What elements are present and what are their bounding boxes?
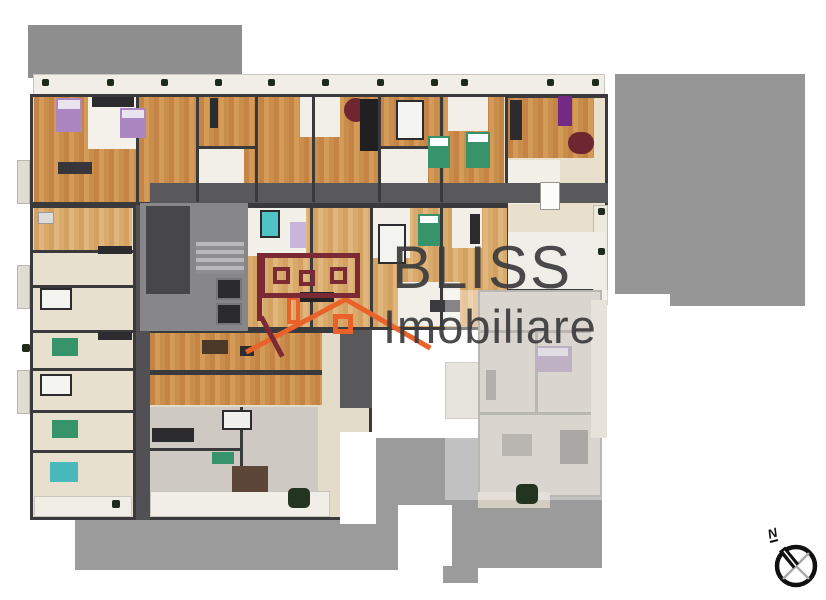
watermark-brand-text: BLISS xyxy=(392,238,572,298)
sofa-brown xyxy=(232,466,268,492)
bed-teal xyxy=(50,462,78,482)
wall-h-7 xyxy=(30,368,136,371)
plant-top-2 xyxy=(107,79,114,86)
wall-v-4 xyxy=(312,97,315,202)
dining-table-round-2 xyxy=(568,132,594,154)
room-white-3 xyxy=(300,97,340,137)
kitchen-counter-1 xyxy=(360,99,378,151)
plant-top-10 xyxy=(547,79,554,86)
pavement-step xyxy=(443,566,478,583)
balcony-left-3 xyxy=(17,370,30,414)
corridor-central-vertical xyxy=(340,330,372,408)
plant-right-1 xyxy=(598,208,605,215)
bush-2 xyxy=(516,484,538,504)
bathtub-teal xyxy=(260,210,280,238)
wardrobe-dark-1 xyxy=(92,97,134,107)
wall-v-3 xyxy=(255,97,258,202)
wall-h-1 xyxy=(196,146,258,149)
wood-floor-central xyxy=(150,333,322,405)
room-white-5 xyxy=(448,97,488,131)
balcony-left-2 xyxy=(17,265,30,309)
plant-left-1 xyxy=(22,344,30,352)
plant-top-9 xyxy=(461,79,468,86)
kitchen-counter-4 xyxy=(98,246,132,254)
bed-lavender xyxy=(290,222,306,248)
plant-top-11 xyxy=(592,79,599,86)
bed-green-1-pillow xyxy=(430,138,448,146)
bed-green-5 xyxy=(52,420,78,438)
bush-1 xyxy=(288,488,310,508)
logo-window-orange xyxy=(333,314,353,334)
wardrobe-purple xyxy=(558,96,572,126)
wall-v-5 xyxy=(378,97,381,202)
bed-white-4 xyxy=(40,374,72,396)
bed-green-3-pillow xyxy=(420,216,438,223)
logo-window-maroon-2 xyxy=(299,270,315,286)
washer xyxy=(38,212,54,224)
logo-window-maroon-1 xyxy=(273,267,290,284)
desk-dark-2 xyxy=(152,428,194,442)
kitchen-counter-5 xyxy=(98,332,132,340)
wall-h-3 xyxy=(150,370,322,375)
wall-v-2 xyxy=(196,97,199,202)
plant-top-5 xyxy=(268,79,275,86)
wall-v-9 xyxy=(370,205,373,327)
bed-green-2-pillow xyxy=(468,134,488,142)
plant-top-8 xyxy=(431,79,438,86)
pavement-walkway-gap xyxy=(398,505,452,570)
kitchen-counter-2 xyxy=(510,100,522,140)
desk-wood xyxy=(202,340,228,354)
elevator-1 xyxy=(216,278,242,300)
pavement-left xyxy=(75,517,398,570)
table-green xyxy=(212,452,234,464)
bed-green-4 xyxy=(52,338,78,356)
bed-white-5 xyxy=(222,410,252,430)
stairs xyxy=(196,242,244,274)
wall-h-8 xyxy=(30,410,136,413)
balcony-top-strip xyxy=(33,74,605,96)
floor-plan-canvas: BLISS Imobiliare N xyxy=(0,0,826,600)
wall-h-9 xyxy=(30,450,136,453)
plant-top-1 xyxy=(42,79,49,86)
watermark-subtitle-text: Imobiliare xyxy=(383,303,597,350)
roof-top-right xyxy=(615,74,805,294)
plant-bottom-1 xyxy=(112,500,120,508)
roof-top-right-step xyxy=(670,294,805,306)
bed-purple-2-pillow xyxy=(122,110,144,118)
sofa-dark-1 xyxy=(58,162,92,174)
bed-white-1 xyxy=(396,100,424,140)
bathtub-white xyxy=(540,182,560,210)
plant-top-7 xyxy=(377,79,384,86)
plant-top-6 xyxy=(322,79,329,86)
balcony-left-1 xyxy=(17,160,30,204)
tv-unit-1 xyxy=(210,98,218,128)
bed-white-3 xyxy=(40,288,72,310)
logo-chimney xyxy=(287,296,300,324)
logo-window-maroon-3 xyxy=(330,267,347,284)
plant-top-3 xyxy=(161,79,168,86)
plant-top-4 xyxy=(215,79,222,86)
wall-h-10 xyxy=(150,448,242,451)
elevator-2 xyxy=(216,303,242,325)
storage-dark xyxy=(146,206,190,294)
plant-right-2 xyxy=(598,248,605,255)
roof-top-left xyxy=(28,25,242,78)
bed-purple-1-pillow xyxy=(58,100,80,109)
central-column-cut xyxy=(340,432,376,524)
compass-icon: N xyxy=(756,518,826,593)
